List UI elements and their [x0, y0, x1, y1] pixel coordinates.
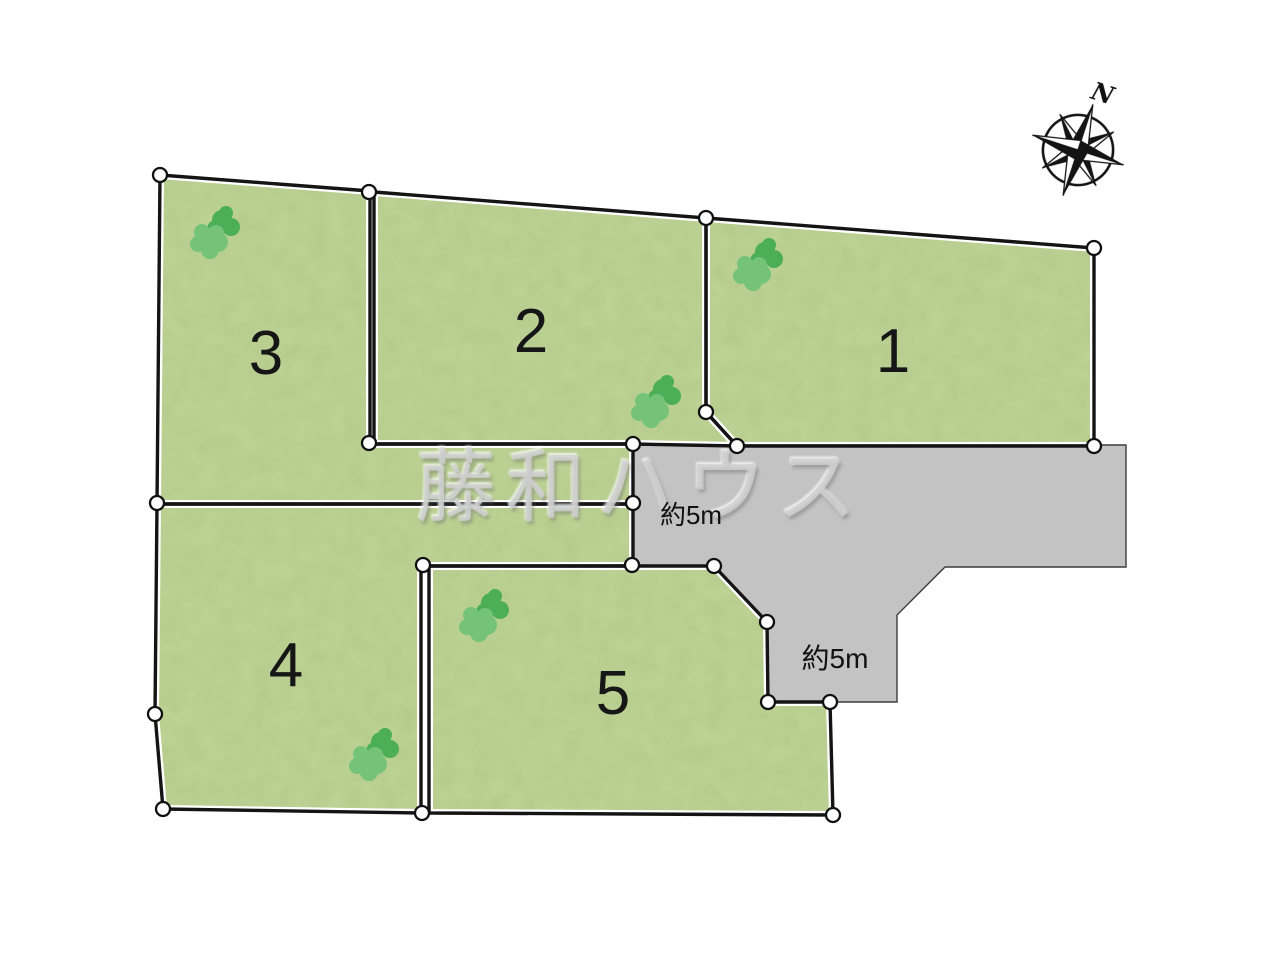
boundary-point: [826, 808, 840, 822]
boundary-point: [707, 559, 721, 573]
lot-3-number: 3: [249, 319, 283, 388]
road-width-label-bottom: 約5m: [802, 643, 869, 674]
lot-5-number: 5: [596, 659, 630, 728]
lot-2-number: 2: [514, 297, 548, 366]
boundary-point: [699, 211, 713, 225]
boundary-point: [823, 695, 837, 709]
boundary-point: [153, 168, 167, 182]
boundary-point: [148, 707, 162, 721]
road-width-label-top: 約5m: [660, 500, 722, 530]
lot-1-number: 1: [876, 317, 910, 386]
boundary-point: [761, 695, 775, 709]
compass-rose: N: [1018, 63, 1148, 211]
compass-cardinal-points: [1018, 90, 1139, 211]
boundary-point: [415, 806, 429, 820]
watermark: 藤和ハウス: [416, 443, 866, 532]
boundary-point: [625, 558, 639, 572]
boundary-point: [699, 405, 713, 419]
compass-north-label: N: [1087, 76, 1119, 111]
site-plan: N 藤和ハウス 1 2 3 4 5 約5m 約5m: [0, 0, 1280, 960]
site-plan-page: N 藤和ハウス 1 2 3 4 5 約5m 約5m: [0, 0, 1280, 960]
boundary-point: [1087, 439, 1101, 453]
boundary-point: [1087, 241, 1101, 255]
boundary-point: [362, 436, 376, 450]
boundary-point: [416, 558, 430, 572]
boundary-point: [362, 185, 376, 199]
boundary-point: [150, 496, 164, 510]
boundary-point: [156, 802, 170, 816]
boundary-point: [760, 615, 774, 629]
lot-4-number: 4: [269, 631, 303, 700]
